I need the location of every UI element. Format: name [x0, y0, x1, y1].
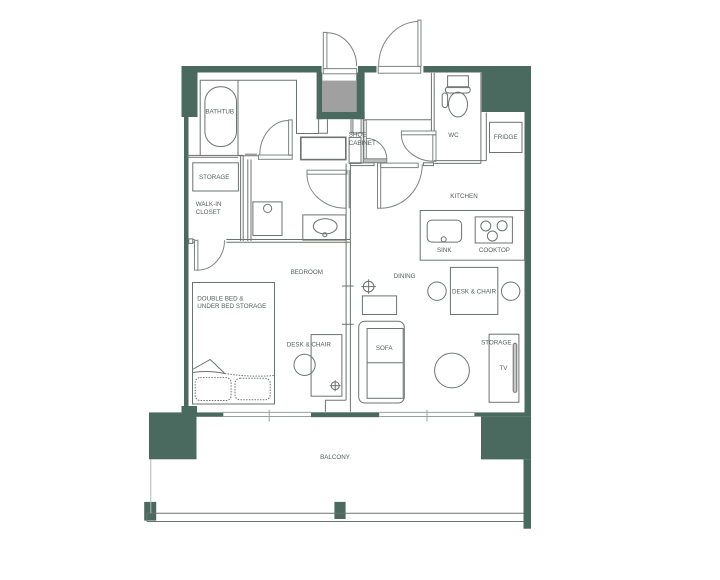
svg-text:CABINET: CABINET [349, 140, 376, 147]
svg-text:UNDER BED STORAGE: UNDER BED STORAGE [197, 303, 266, 310]
svg-text:SOFA: SOFA [376, 345, 394, 352]
svg-text:KITCHEN: KITCHEN [450, 193, 477, 200]
svg-text:DOUBLE BED &: DOUBLE BED & [197, 295, 244, 302]
svg-text:BEDROOM: BEDROOM [291, 269, 323, 276]
svg-text:CLOSET: CLOSET [196, 209, 221, 216]
svg-text:WALK-IN: WALK-IN [196, 201, 222, 208]
svg-text:DESK & CHAIR: DESK & CHAIR [287, 341, 332, 348]
svg-text:WC: WC [448, 132, 459, 139]
svg-text:COOKTOP: COOKTOP [479, 247, 510, 254]
svg-text:SHOE: SHOE [349, 131, 367, 138]
svg-text:STORAGE: STORAGE [199, 174, 229, 181]
svg-text:SINK: SINK [437, 247, 452, 254]
svg-text:DESK & CHAIR: DESK & CHAIR [452, 289, 497, 296]
svg-text:STORAGE: STORAGE [481, 339, 511, 346]
svg-text:BALCONY: BALCONY [320, 454, 351, 461]
svg-text:BATHTUB: BATHTUB [205, 109, 234, 116]
svg-text:FRIDGE: FRIDGE [494, 134, 518, 141]
svg-text:DINING: DINING [394, 273, 416, 280]
svg-text:TV: TV [499, 365, 508, 372]
